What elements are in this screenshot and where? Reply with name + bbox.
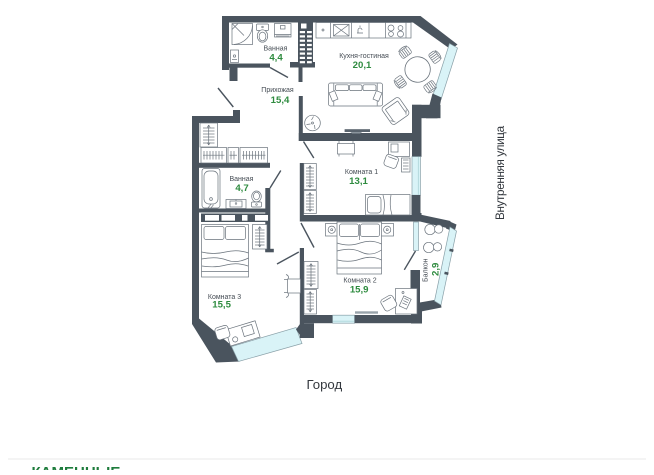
svg-text:15,5: 15,5 [212, 300, 231, 311]
svg-text:КАМЕННЫЕ: КАМЕННЫЕ [32, 464, 121, 470]
svg-text:13,1: 13,1 [349, 176, 368, 187]
svg-text:4,4: 4,4 [269, 52, 283, 63]
svg-text:4,7: 4,7 [235, 183, 248, 194]
svg-text:Внутренняя улица: Внутренняя улица [494, 125, 507, 220]
svg-text:Прихожая: Прихожая [261, 87, 294, 94]
svg-text:20,1: 20,1 [353, 60, 372, 71]
svg-text:Балкон: Балкон [423, 258, 430, 282]
svg-text:15,4: 15,4 [271, 95, 290, 106]
svg-text:2,9: 2,9 [431, 263, 442, 276]
svg-text:Город: Город [307, 377, 343, 392]
svg-text:15,9: 15,9 [350, 285, 369, 296]
svg-text:Ванная: Ванная [230, 176, 254, 183]
